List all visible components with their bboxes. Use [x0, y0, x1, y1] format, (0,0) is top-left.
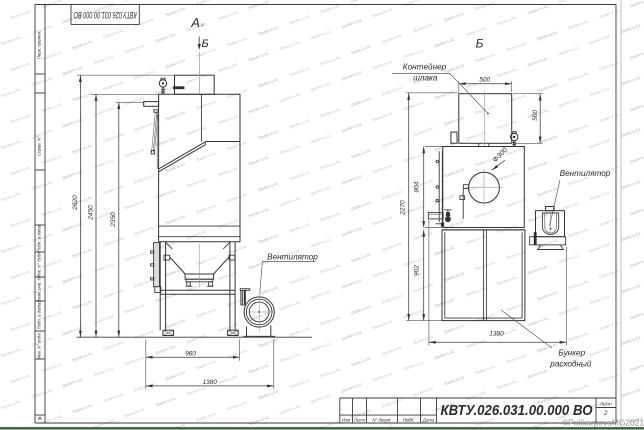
svg-text:Изм: Изм [342, 418, 350, 423]
svg-text:902: 902 [414, 265, 421, 276]
svg-text:Инв. N° подл.: Инв. N° подл. [37, 332, 42, 359]
svg-text:Контейнер: Контейнер [403, 63, 447, 72]
svg-text:расходный: расходный [549, 360, 592, 369]
svg-text:Бункер: Бункер [558, 349, 585, 358]
svg-text:КВТУ.026.031.00.000 ВО: КВТУ.026.031.00.000 ВО [441, 402, 593, 419]
svg-text:2450: 2450 [87, 205, 94, 221]
svg-text:Лист: Лист [599, 401, 612, 406]
svg-text:2350: 2350 [110, 212, 117, 228]
svg-text:КВТУ.026.031.00.000 ВО: КВТУ.026.031.00.000 ВО [74, 10, 137, 20]
svg-text:Б: Б [202, 38, 209, 50]
svg-text:1380: 1380 [203, 379, 218, 386]
svg-text:Подп. и дата: Подп. и дата [37, 224, 42, 252]
svg-text:2: 2 [603, 411, 608, 417]
svg-text:N° докум.: N° докум. [372, 418, 391, 423]
svg-text:Лист: Лист [353, 418, 365, 423]
svg-text:Вентилятор: Вентилятор [560, 169, 611, 178]
svg-text:Взам. инв. N°: Взам. инв. N° [37, 275, 42, 302]
svg-text:А: А [190, 15, 200, 30]
svg-text:(1: (1 [201, 23, 204, 27]
svg-text:500: 500 [479, 77, 490, 84]
svg-text:2620: 2620 [72, 195, 79, 211]
svg-text:804: 804 [414, 181, 421, 192]
svg-text:Вентилятор: Вентилятор [267, 253, 318, 262]
svg-text:1380: 1380 [489, 330, 504, 337]
svg-text:Справ. N°: Справ. N° [37, 136, 42, 156]
svg-text:2270: 2270 [399, 200, 406, 216]
svg-text:960: 960 [185, 350, 196, 357]
svg-text:шлака: шлака [413, 74, 438, 83]
svg-text:Перв. примен.: Перв. примен. [37, 31, 42, 60]
svg-text:Подп.: Подп. [403, 418, 414, 423]
svg-text:500: 500 [532, 110, 539, 121]
svg-text:Б: Б [476, 37, 484, 51]
svg-text:Дата: Дата [422, 418, 435, 423]
svg-text:Подп. и дата: Подп. и дата [37, 302, 42, 330]
svg-text:©PolikarpovaMG2021: ©PolikarpovaMG2021 [562, 418, 644, 427]
svg-text:Инв. N° дубл.: Инв. N° дубл. [37, 251, 42, 278]
